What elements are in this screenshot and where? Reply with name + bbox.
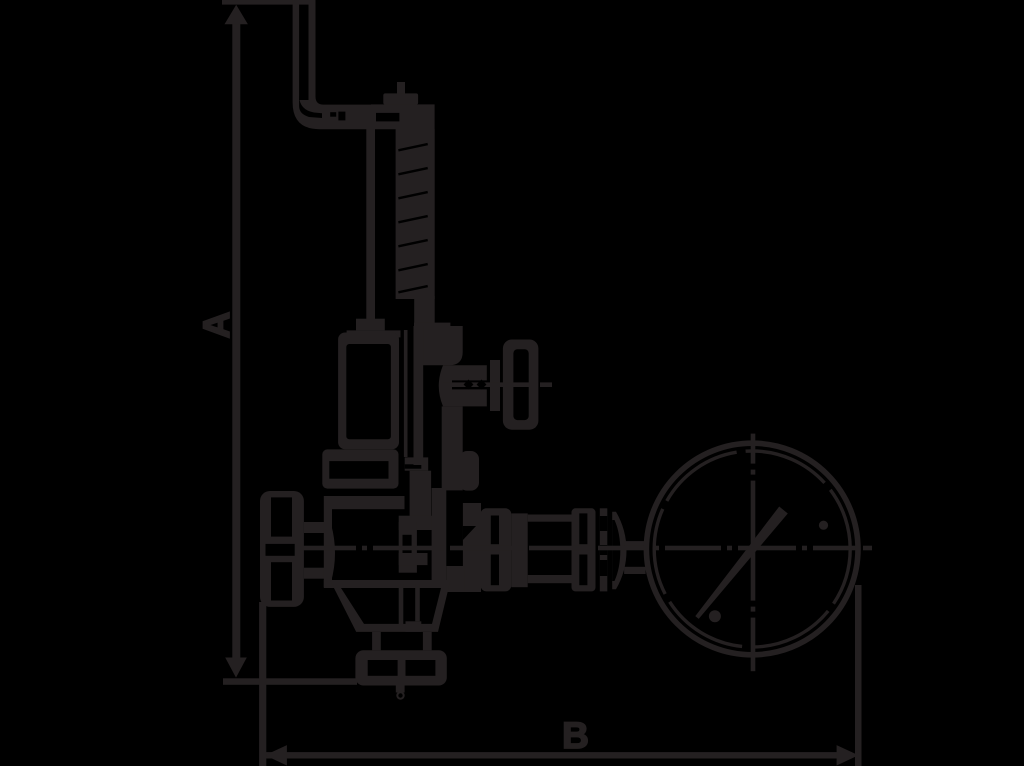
svg-text:B: B xyxy=(562,715,589,756)
svg-text:A: A xyxy=(196,312,237,339)
